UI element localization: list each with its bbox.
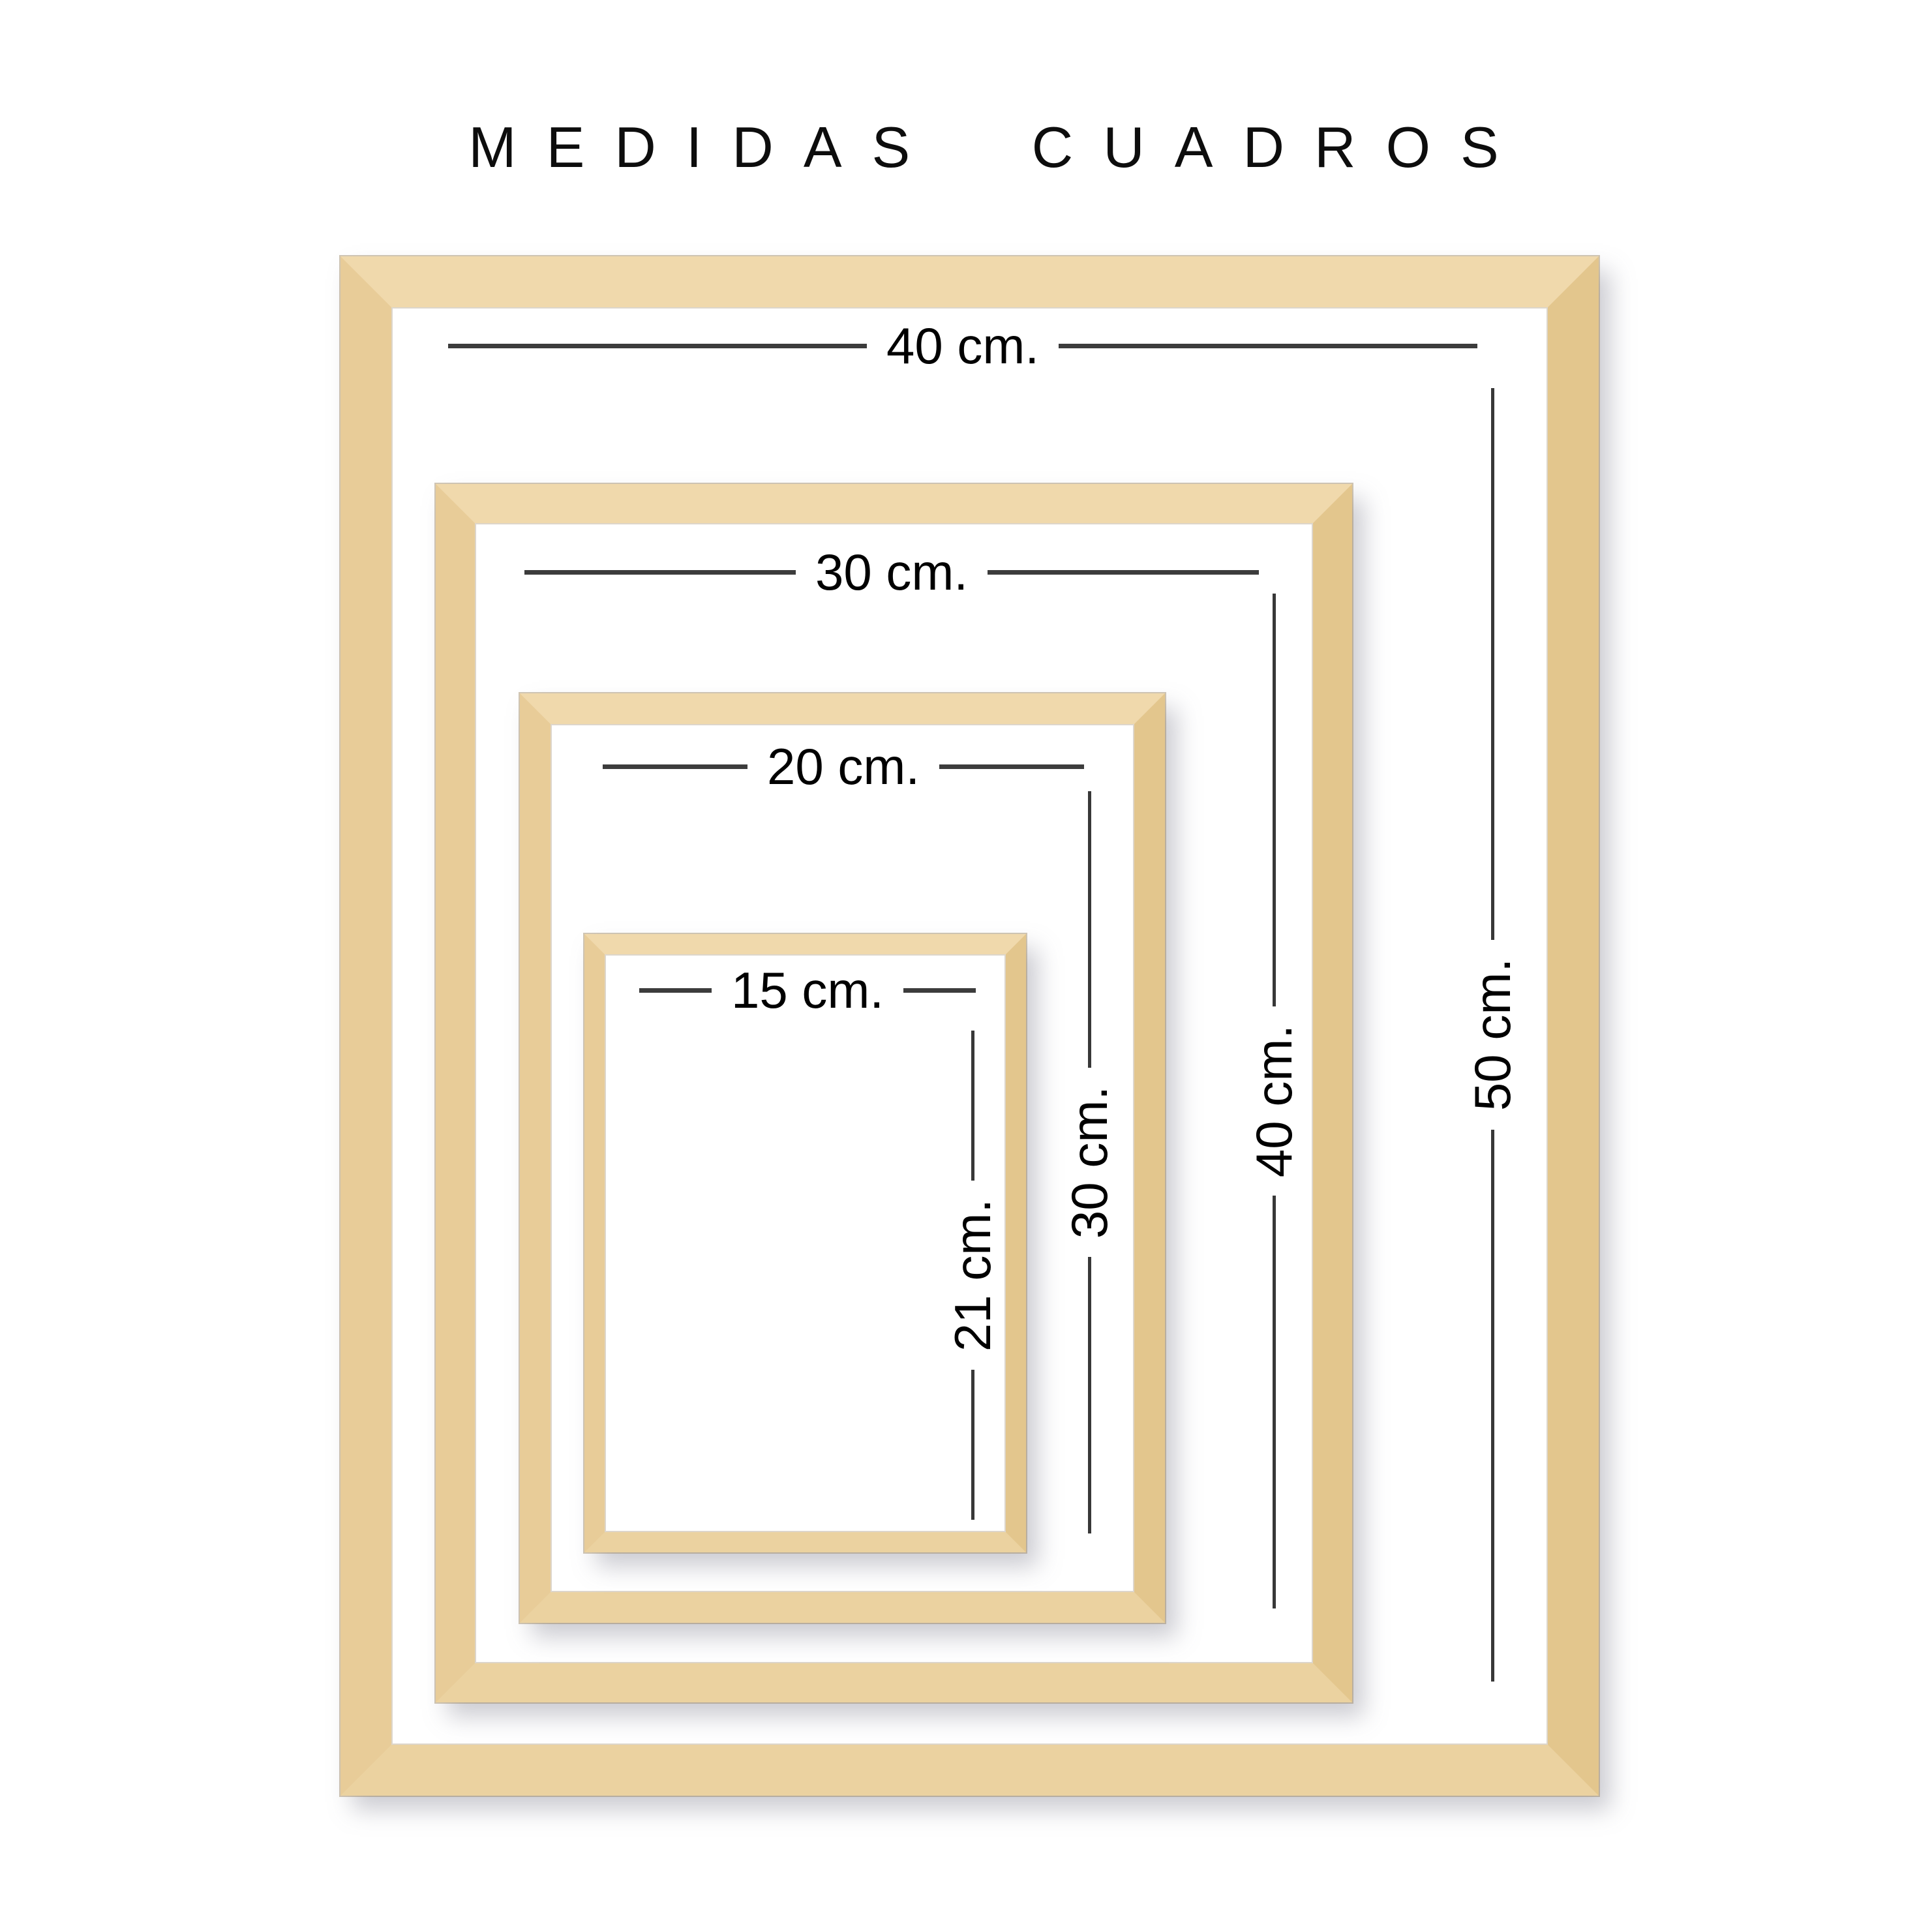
dimension-line-segment <box>1088 791 1091 1068</box>
height-dimension-label-40cm: 40 cm. <box>1248 1025 1299 1177</box>
height-dimension-label-50cm: 50 cm. <box>1467 958 1518 1111</box>
width-dimension-label-30cm: 30 cm. <box>815 547 968 597</box>
dimension-line-segment <box>603 764 747 769</box>
dimension-line-segment <box>1273 1196 1276 1608</box>
dimension-line-segment <box>1491 388 1494 940</box>
dimension-line-segment <box>448 344 867 348</box>
dimension-line-segment <box>524 570 796 575</box>
dimension-line-segment <box>639 988 712 993</box>
dimension-line-segment <box>1088 1257 1091 1533</box>
height-dimension-40cm: 40 cm. <box>1235 594 1313 1608</box>
dimension-line-segment <box>903 988 976 993</box>
height-dimension-label-21cm: 21 cm. <box>947 1199 998 1351</box>
width-dimension-40cm: 40 cm. <box>448 303 1477 388</box>
dimension-line-segment <box>1491 1130 1494 1682</box>
dimension-line-segment <box>971 1370 974 1520</box>
width-dimension-label-15cm: 15 cm. <box>731 965 884 1016</box>
width-dimension-15cm: 15 cm. <box>639 948 976 1033</box>
width-dimension-label-20cm: 20 cm. <box>767 741 920 792</box>
width-dimension-20cm: 20 cm. <box>603 724 1084 809</box>
page-title: MEDIDAS CUADROS <box>33 116 1932 179</box>
width-dimension-label-40cm: 40 cm. <box>886 320 1039 371</box>
height-dimension-label-30cm: 30 cm. <box>1064 1086 1115 1239</box>
height-dimension-30cm: 30 cm. <box>1050 791 1128 1533</box>
dimension-line-segment <box>939 764 1084 769</box>
width-dimension-30cm: 30 cm. <box>524 530 1259 614</box>
dimension-line-segment <box>971 1031 974 1181</box>
dimension-line-segment <box>1059 344 1477 348</box>
height-dimension-21cm: 21 cm. <box>933 1031 1012 1520</box>
dimension-line-segment <box>988 570 1259 575</box>
dimension-line-segment <box>1273 594 1276 1006</box>
frame-sizes-diagram: MEDIDAS CUADROS 40 cm. 30 cm. 20 cm. 15 … <box>0 0 1932 1932</box>
height-dimension-50cm: 50 cm. <box>1453 388 1532 1682</box>
